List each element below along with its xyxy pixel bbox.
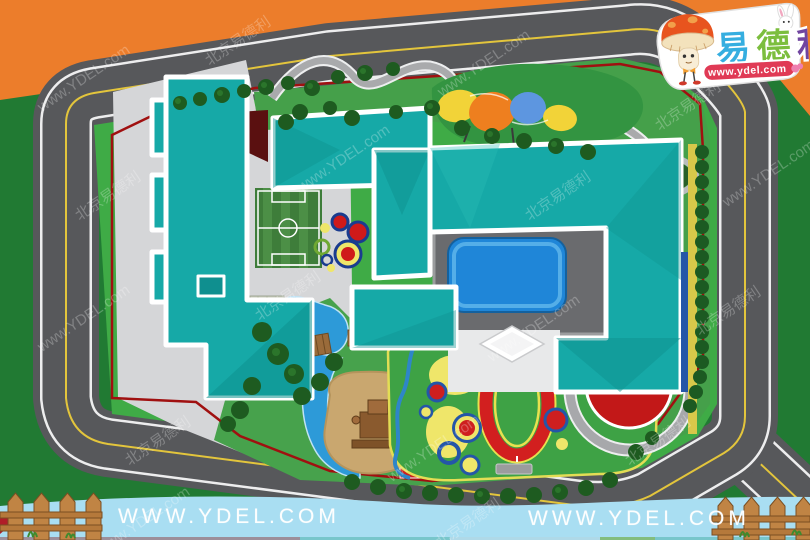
gray-mat (496, 464, 532, 474)
courtyard (434, 226, 606, 334)
logo-sticker: 易 德 利 www.ydel.com (644, 0, 810, 96)
soccer-field (255, 188, 322, 268)
poster: WWW.YDEL.COM WWW.YDEL.COM 易 德 利 www.ydel… (0, 0, 810, 540)
building-mid-wing (374, 150, 430, 278)
footer-url-left: WWW.YDEL.COM (118, 505, 340, 529)
swimming-pool (448, 238, 566, 312)
footer-url-right: WWW.YDEL.COM (528, 507, 750, 531)
play-hill (432, 64, 643, 149)
building-center-block (352, 287, 456, 348)
